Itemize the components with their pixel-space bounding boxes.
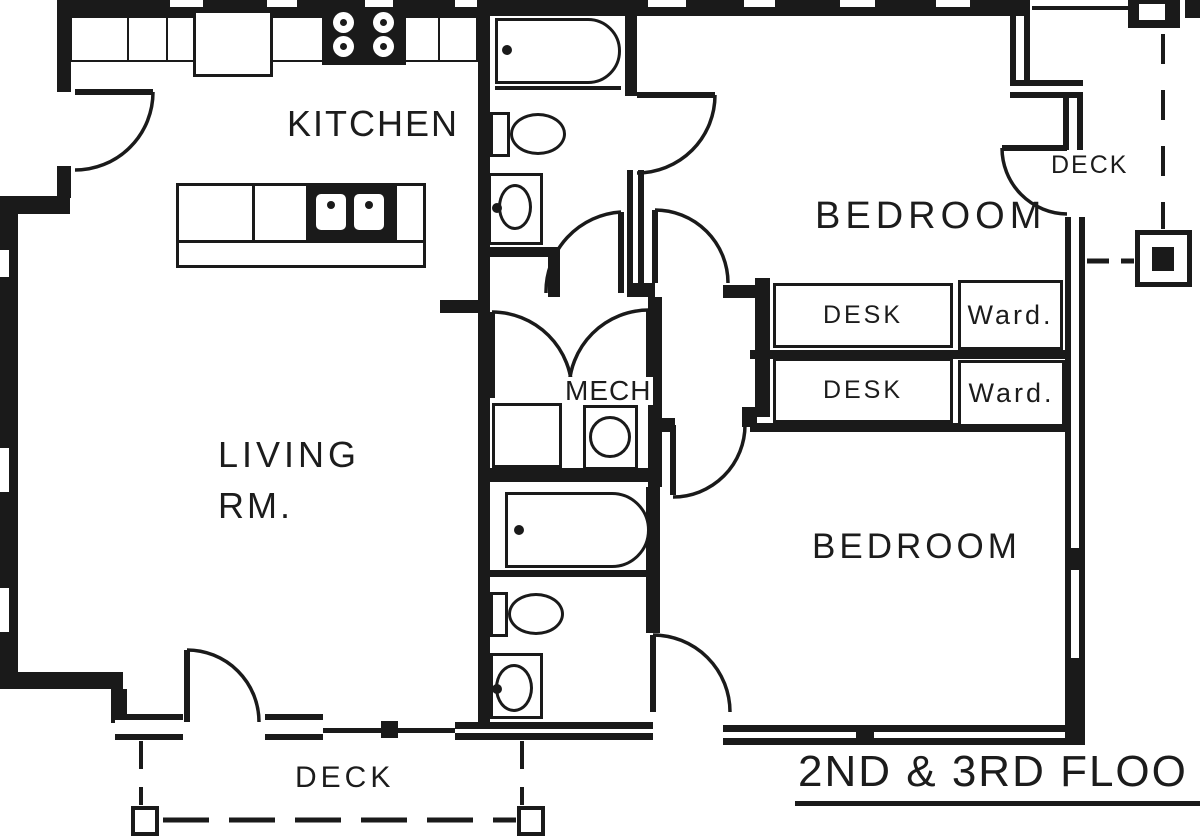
- area-label-deck-upper: DECK: [1051, 153, 1128, 178]
- linework-layer: [0, 0, 1200, 839]
- room-label-living-rm: RM.: [218, 488, 293, 524]
- plan-title: 2ND & 3RD FLOO: [798, 750, 1188, 794]
- area-label-deck-lower: DECK: [295, 763, 394, 793]
- room-label-living: LIVING: [218, 437, 360, 473]
- door-arc: [673, 425, 745, 497]
- door-arc: [546, 212, 621, 293]
- floor-plan: DESK Ward. DESK Ward.: [0, 0, 1200, 839]
- door-arc: [637, 95, 715, 173]
- door-arc: [187, 650, 259, 722]
- room-label-bedroom-top: BEDROOM: [815, 197, 1046, 235]
- door-arc: [653, 635, 730, 712]
- room-label-bedroom-bottom: BEDROOM: [812, 529, 1021, 564]
- title-underline: [795, 801, 1200, 806]
- door-arc: [655, 210, 728, 283]
- door-arc: [492, 312, 572, 392]
- door-arc: [75, 92, 153, 170]
- room-label-mech: MECH: [563, 377, 653, 405]
- room-label-kitchen: KITCHEN: [287, 106, 459, 142]
